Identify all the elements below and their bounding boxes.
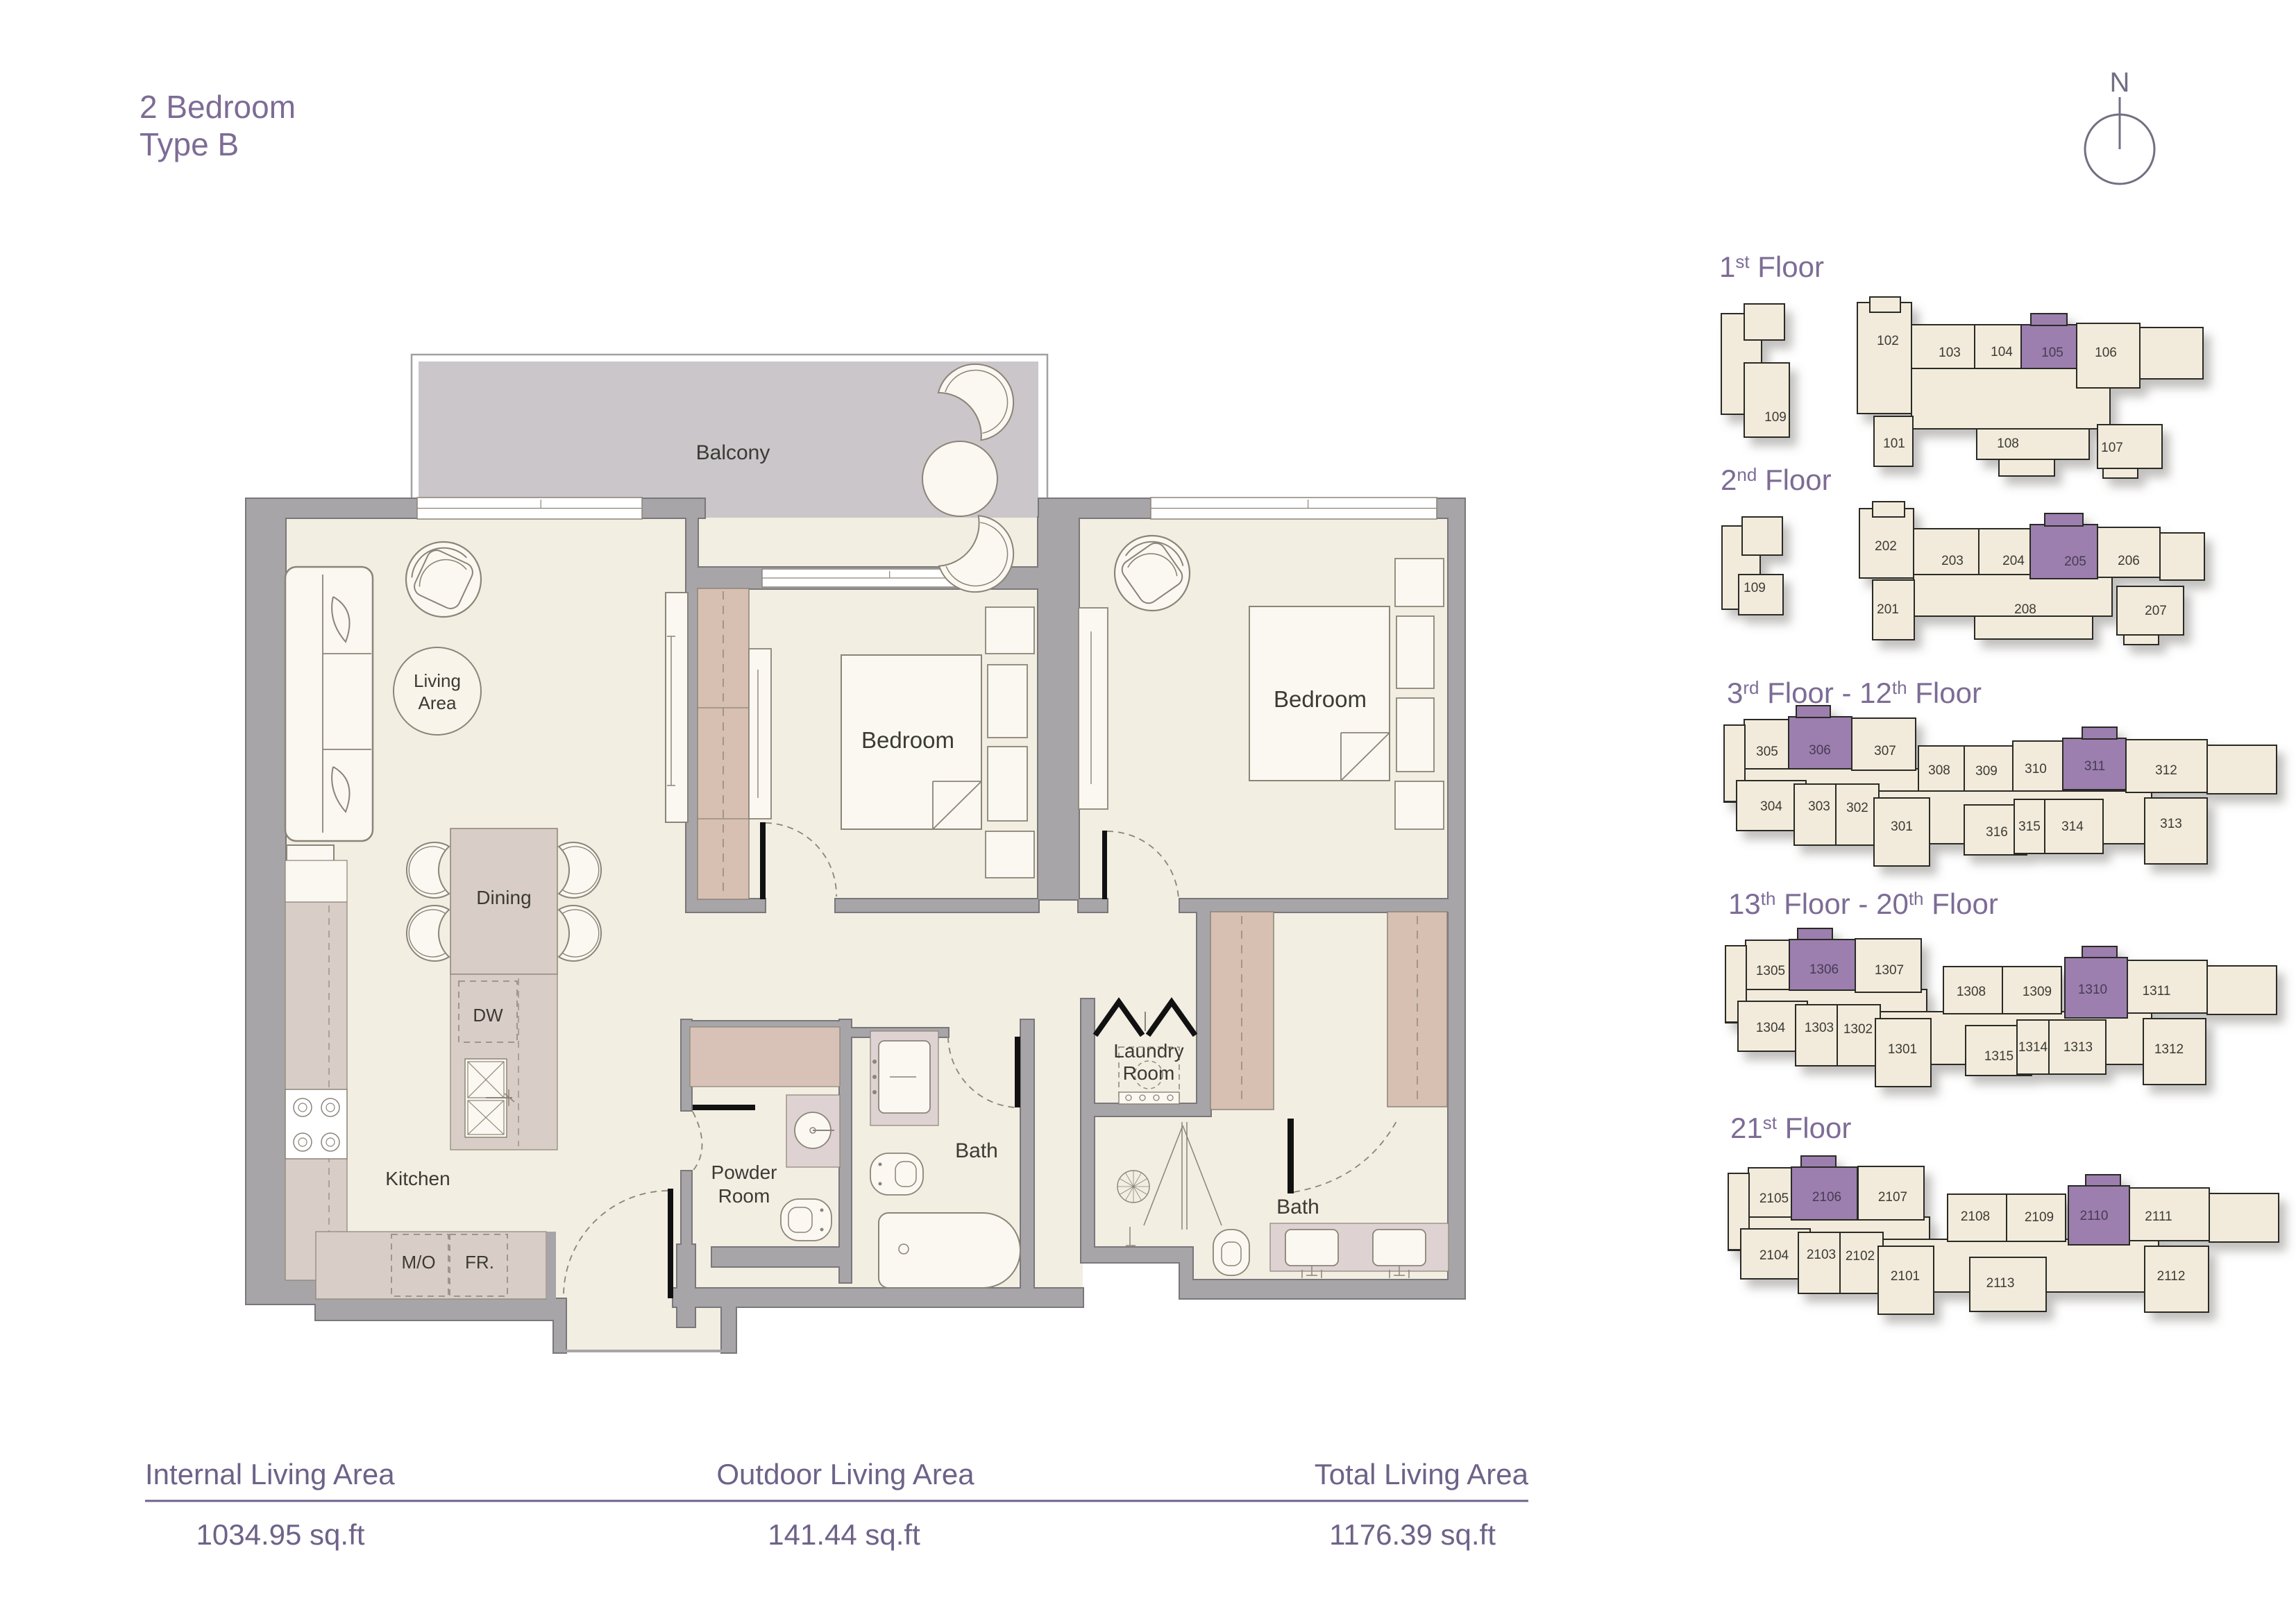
svg-text:1176.39 sq.ft: 1176.39 sq.ft [1329, 1518, 1496, 1551]
svg-text:1034.95 sq.ft: 1034.95 sq.ft [196, 1518, 365, 1551]
svg-text:21st Floor: 21st Floor [1730, 1112, 1851, 1144]
svg-text:312: 312 [2155, 763, 2177, 778]
svg-text:106: 106 [2095, 346, 2117, 360]
svg-text:314: 314 [2061, 819, 2084, 834]
svg-text:Bedroom: Bedroom [1274, 686, 1367, 712]
svg-text:1303: 1303 [1805, 1021, 1834, 1035]
svg-text:1310: 1310 [2078, 983, 2107, 997]
svg-text:DW: DW [473, 1005, 503, 1026]
svg-text:Kitchen: Kitchen [385, 1168, 450, 1189]
svg-text:Outdoor Living Area: Outdoor Living Area [716, 1458, 974, 1490]
svg-text:Bath: Bath [955, 1139, 998, 1162]
svg-text:Powder: Powder [711, 1162, 777, 1183]
svg-text:141.44 sq.ft: 141.44 sq.ft [768, 1518, 920, 1551]
svg-text:1301: 1301 [1888, 1042, 1917, 1057]
svg-text:305: 305 [1756, 745, 1778, 759]
svg-text:307: 307 [1874, 744, 1896, 758]
svg-text:Living: Living [414, 670, 461, 691]
svg-text:1307: 1307 [1875, 963, 1904, 978]
svg-text:1313: 1313 [2063, 1040, 2093, 1055]
svg-text:207: 207 [2145, 604, 2167, 618]
svg-text:2109: 2109 [2025, 1210, 2054, 1225]
svg-text:303: 303 [1808, 799, 1830, 814]
svg-text:1315: 1315 [1984, 1049, 2014, 1064]
svg-text:202: 202 [1875, 539, 1897, 554]
svg-text:1st Floor: 1st Floor [1719, 250, 1824, 283]
svg-text:2103: 2103 [1807, 1248, 1836, 1262]
svg-text:2106: 2106 [1812, 1190, 1841, 1205]
svg-text:301: 301 [1891, 819, 1913, 834]
svg-text:108: 108 [1997, 436, 2019, 451]
svg-text:1311: 1311 [2143, 984, 2171, 999]
svg-text:Room: Room [718, 1185, 770, 1207]
svg-text:Internal Living Area: Internal Living Area [145, 1458, 395, 1490]
svg-text:3rd Floor - 12th Floor: 3rd Floor - 12th Floor [1727, 677, 1982, 709]
svg-text:101: 101 [1883, 436, 1905, 451]
svg-text:Laundry: Laundry [1113, 1040, 1183, 1062]
svg-text:309: 309 [1975, 764, 1998, 779]
svg-text:308: 308 [1928, 763, 1950, 778]
svg-text:102: 102 [1877, 334, 1899, 348]
svg-text:2112: 2112 [2157, 1269, 2186, 1284]
svg-text:1312: 1312 [2154, 1042, 2184, 1057]
svg-text:Room: Room [1123, 1062, 1175, 1084]
svg-text:1306: 1306 [1809, 962, 1839, 977]
svg-text:105: 105 [2041, 346, 2063, 360]
svg-text:Total Living Area: Total Living Area [1315, 1458, 1529, 1490]
svg-text:2107: 2107 [1878, 1190, 1907, 1205]
svg-text:206: 206 [2118, 554, 2140, 568]
svg-text:311: 311 [2084, 759, 2105, 774]
svg-text:2104: 2104 [1759, 1248, 1789, 1263]
svg-text:109: 109 [1764, 410, 1787, 425]
svg-text:2113: 2113 [1986, 1276, 2015, 1291]
svg-text:104: 104 [1991, 345, 2013, 359]
svg-text:203: 203 [1941, 554, 1964, 568]
svg-text:103: 103 [1939, 346, 1961, 360]
svg-text:1302: 1302 [1843, 1022, 1873, 1037]
svg-text:Area: Area [419, 692, 457, 713]
svg-text:2110: 2110 [2080, 1209, 2109, 1223]
svg-text:201: 201 [1877, 602, 1899, 617]
svg-text:306: 306 [1809, 743, 1831, 758]
svg-text:1308: 1308 [1957, 985, 1986, 999]
svg-text:310: 310 [2025, 762, 2047, 776]
svg-text:N: N [2110, 67, 2130, 98]
svg-text:2105: 2105 [1759, 1191, 1789, 1206]
svg-text:313: 313 [2160, 817, 2182, 831]
svg-text:Bath: Bath [1276, 1196, 1319, 1218]
svg-text:1309: 1309 [2023, 985, 2052, 999]
svg-text:2108: 2108 [1961, 1209, 1990, 1224]
svg-text:107: 107 [2101, 441, 2123, 455]
svg-text:FR.: FR. [465, 1252, 494, 1273]
svg-text:Dining: Dining [476, 887, 531, 908]
svg-text:1314: 1314 [2018, 1040, 2048, 1055]
svg-text:302: 302 [1846, 801, 1868, 815]
svg-text:2102: 2102 [1846, 1249, 1875, 1264]
svg-text:1304: 1304 [1756, 1021, 1786, 1035]
svg-text:304: 304 [1760, 799, 1782, 814]
svg-text:Balcony: Balcony [696, 441, 770, 464]
svg-text:2 Bedroom: 2 Bedroom [140, 89, 296, 125]
svg-text:316: 316 [1986, 825, 2008, 840]
svg-text:208: 208 [2014, 602, 2036, 617]
svg-text:315: 315 [2018, 819, 2041, 834]
svg-text:Type B: Type B [140, 126, 239, 162]
svg-text:2111: 2111 [2145, 1209, 2172, 1224]
svg-text:1305: 1305 [1756, 964, 1785, 978]
svg-text:204: 204 [2002, 554, 2025, 568]
svg-text:109: 109 [1744, 581, 1766, 595]
svg-text:Bedroom: Bedroom [861, 727, 954, 753]
svg-text:2101: 2101 [1891, 1269, 1920, 1284]
svg-text:M/O: M/O [401, 1252, 435, 1273]
svg-text:205: 205 [2064, 554, 2086, 569]
